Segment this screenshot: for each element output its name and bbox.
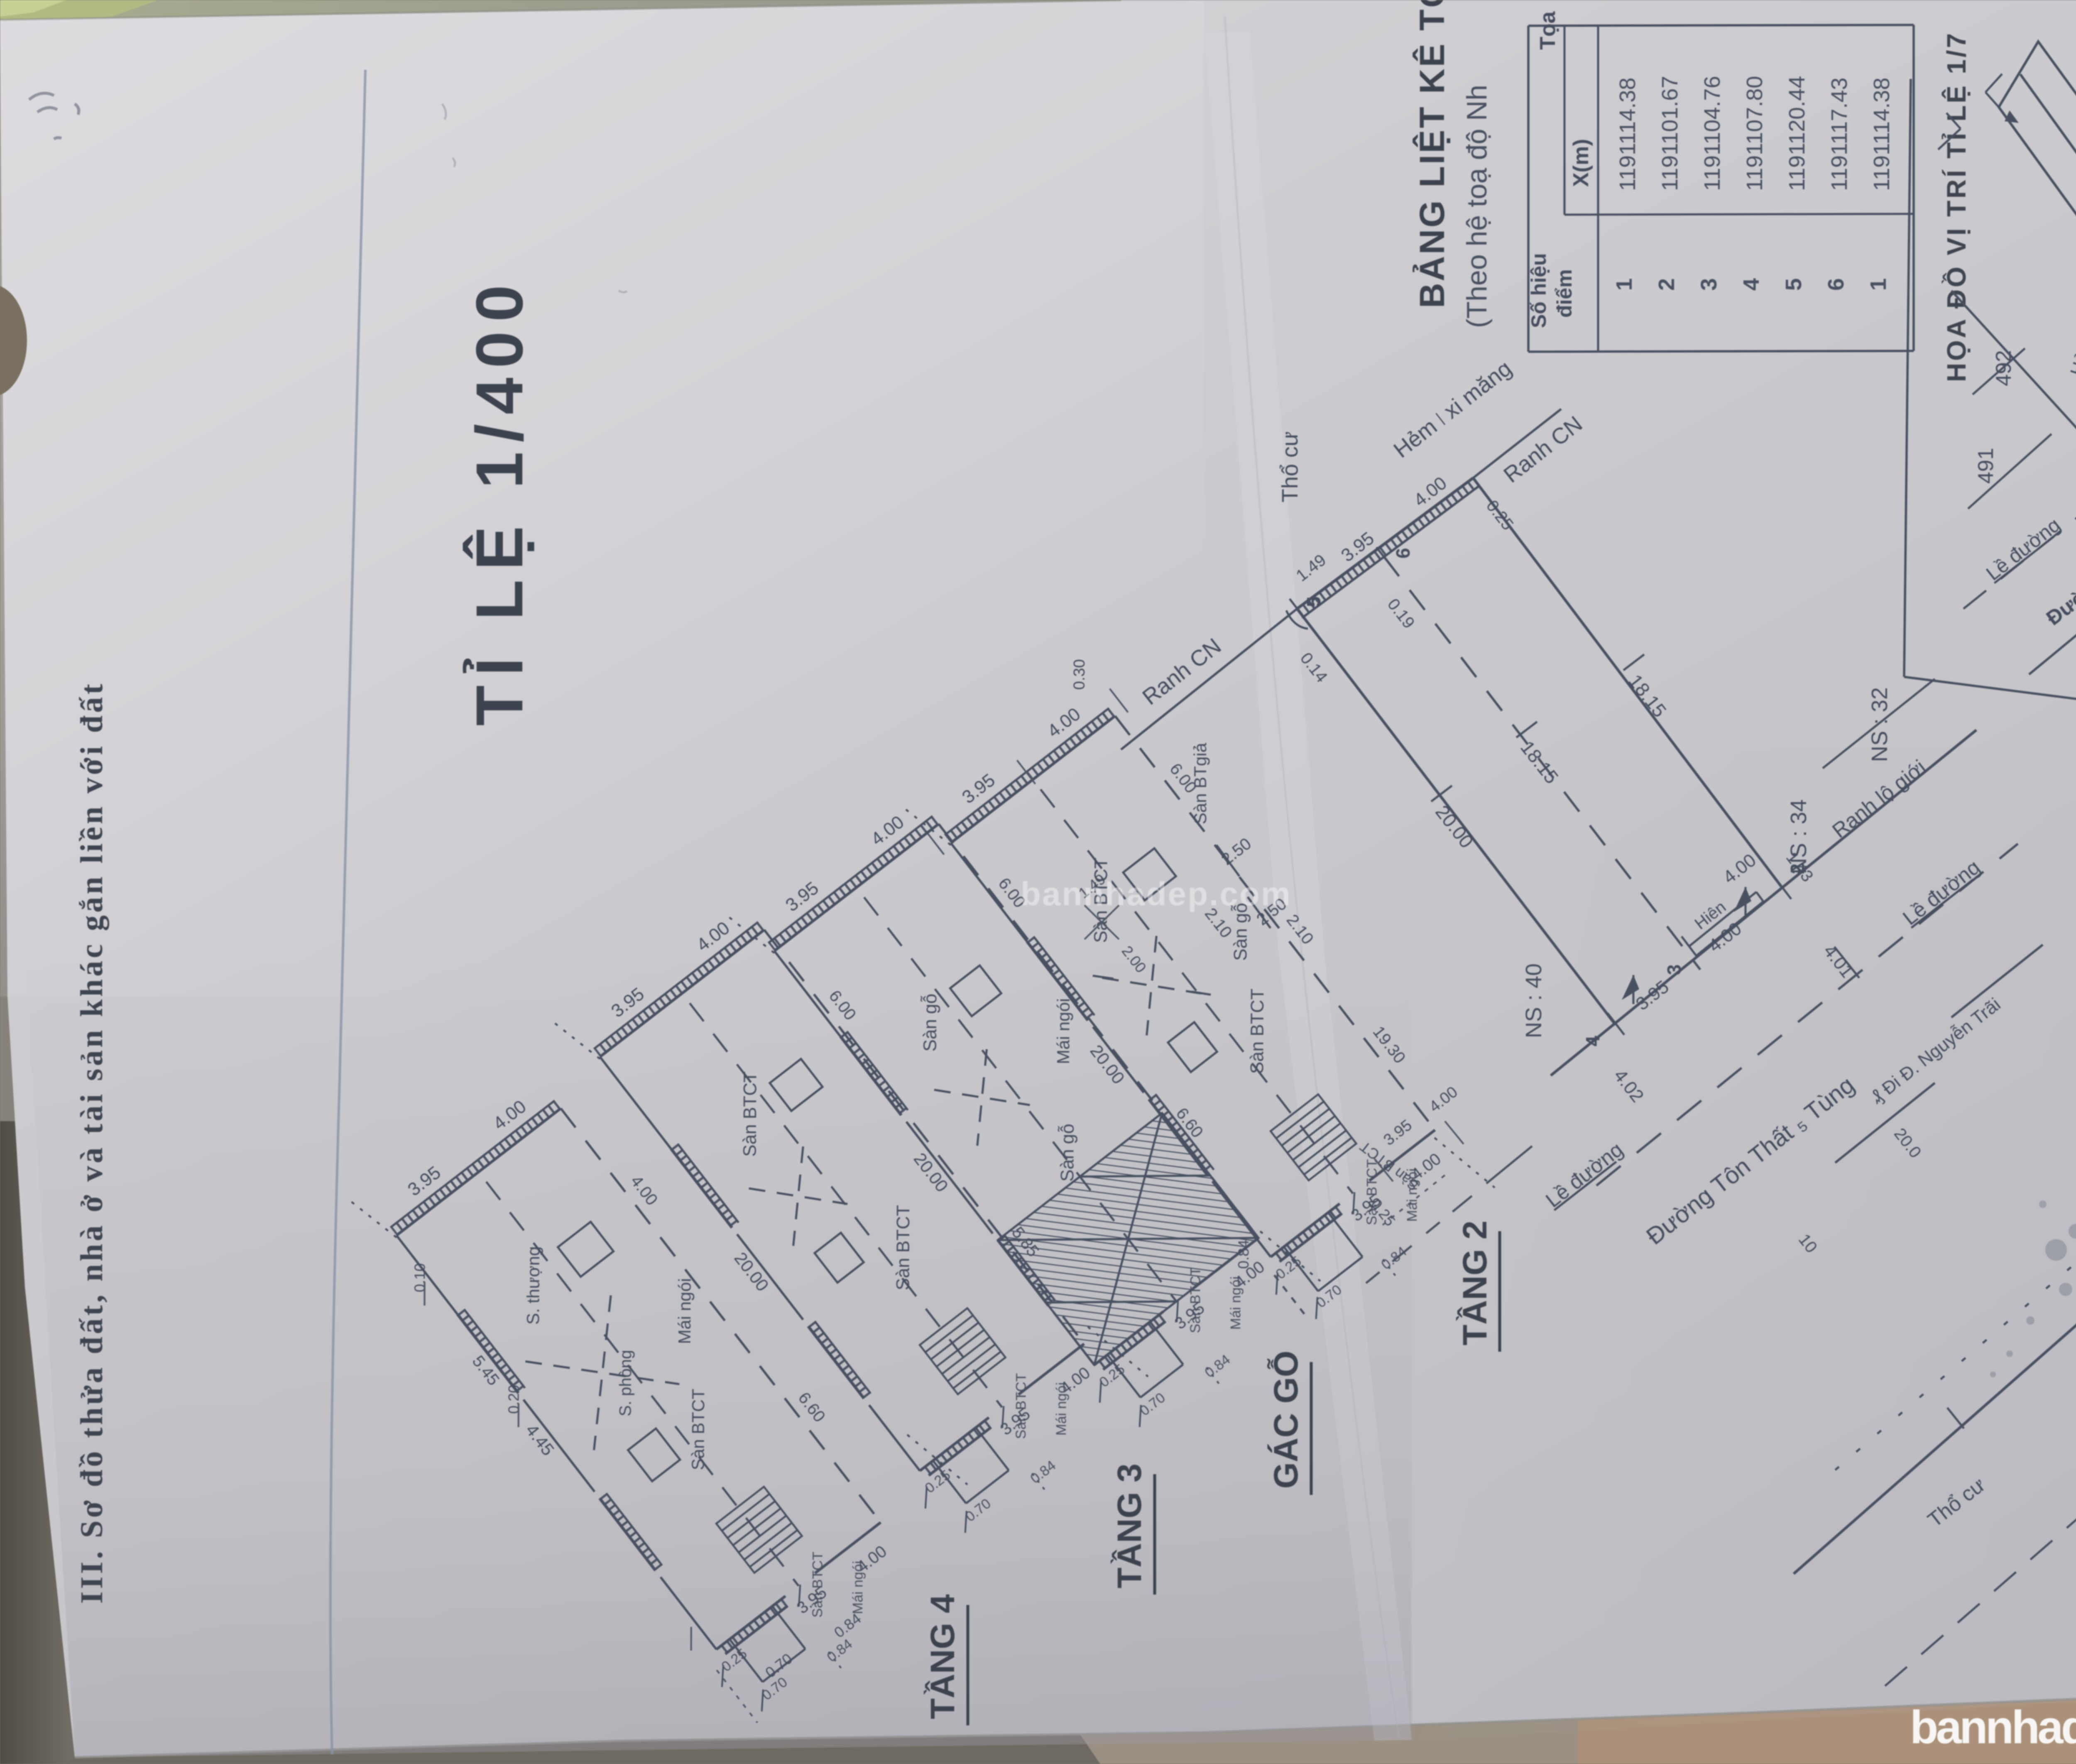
svg-text:0.20: 0.20 <box>505 1385 522 1414</box>
svg-text:S. phòng: S. phòng <box>616 1350 635 1416</box>
svg-text:4: 4 <box>1739 278 1764 291</box>
svg-text:Sàn BTCT: Sàn BTCT <box>893 1205 913 1291</box>
svg-text:Mái ngói: Mái ngói <box>1053 998 1073 1064</box>
svg-text:X(m): X(m) <box>1569 139 1593 187</box>
svg-text:GÁC GỖ: GÁC GỖ <box>1267 1350 1305 1489</box>
svg-text:1191114.38: 1191114.38 <box>1615 78 1640 191</box>
svg-text:1191104.76: 1191104.76 <box>1700 76 1725 191</box>
svg-text:1: 1 <box>1866 278 1891 291</box>
svg-text:Thổ cư: Thổ cư <box>1278 431 1302 502</box>
svg-text:(Theo hệ toạ độ Nh: (Theo hệ toạ độ Nh <box>1461 85 1493 328</box>
svg-text:TẦNG 4: TẦNG 4 <box>924 1594 962 1719</box>
svg-text:III. Sơ đồ thửa đất, nhà ở và: III. Sơ đồ thửa đất, nhà ở và tài sản kh… <box>74 684 109 1604</box>
svg-text:3: 3 <box>1663 964 1685 975</box>
svg-text:5: 5 <box>1303 596 1324 607</box>
svg-text:491: 491 <box>1974 448 1998 484</box>
svg-text:Sàn BTCT: Sàn BTCT <box>1247 989 1268 1074</box>
svg-text:Sàn BTCT: Sàn BTCT <box>740 1071 761 1157</box>
svg-text:TỈ LỆ 1/400: TỈ LỆ 1/400 <box>462 282 536 726</box>
svg-text:Sàn gỗ: Sàn gỗ <box>1057 1124 1078 1182</box>
svg-text:4: 4 <box>1582 1036 1604 1046</box>
svg-text:điểm: điểm <box>1553 269 1576 318</box>
svg-text:3: 3 <box>1697 278 1721 291</box>
svg-text:TẦNG 3: TẦNG 3 <box>1111 1463 1148 1588</box>
svg-text:Tọa: Tọa <box>1536 11 1560 50</box>
svg-text:Mái ngói: Mái ngói <box>675 1278 695 1344</box>
svg-text:0.10: 0.10 <box>411 1263 428 1292</box>
svg-text:1191114.38: 1191114.38 <box>1869 78 1894 191</box>
svg-text:NS : 32: NS : 32 <box>1867 687 1892 762</box>
svg-text:6: 6 <box>1392 548 1414 559</box>
svg-text:1191107.80: 1191107.80 <box>1742 76 1767 191</box>
svg-text:Số hiệu: Số hiệu <box>1527 253 1550 328</box>
svg-text:1191101.67: 1191101.67 <box>1657 76 1682 191</box>
svg-text:bannhadep.com: bannhadep.com <box>1910 1701 2076 1753</box>
svg-text:5: 5 <box>1781 278 1806 291</box>
svg-text:S. thượng: S. thượng <box>523 1246 543 1325</box>
svg-text:Sàn BTgiả: Sàn BTgiả <box>1190 742 1210 824</box>
svg-text:0.30: 0.30 <box>1071 659 1088 690</box>
svg-text:1: 1 <box>1612 278 1637 291</box>
svg-text:Sàn BTCT: Sàn BTCT <box>688 1389 708 1470</box>
svg-text:1191120.44: 1191120.44 <box>1785 76 1809 191</box>
svg-text:NS : 40: NS : 40 <box>1521 963 1546 1038</box>
svg-text:BẢNG LIỆT KÊ TỌA: BẢNG LIỆT KÊ TỌA <box>1413 0 1452 308</box>
svg-text:6: 6 <box>1824 278 1848 291</box>
svg-text:Sàn gỗ: Sàn gỗ <box>920 994 941 1052</box>
svg-text:2: 2 <box>1654 278 1679 291</box>
svg-text:1191117.43: 1191117.43 <box>1827 78 1852 191</box>
svg-text:TẦNG 2: TẦNG 2 <box>1456 1220 1494 1345</box>
svg-text:NS : 34: NS : 34 <box>1786 799 1811 874</box>
